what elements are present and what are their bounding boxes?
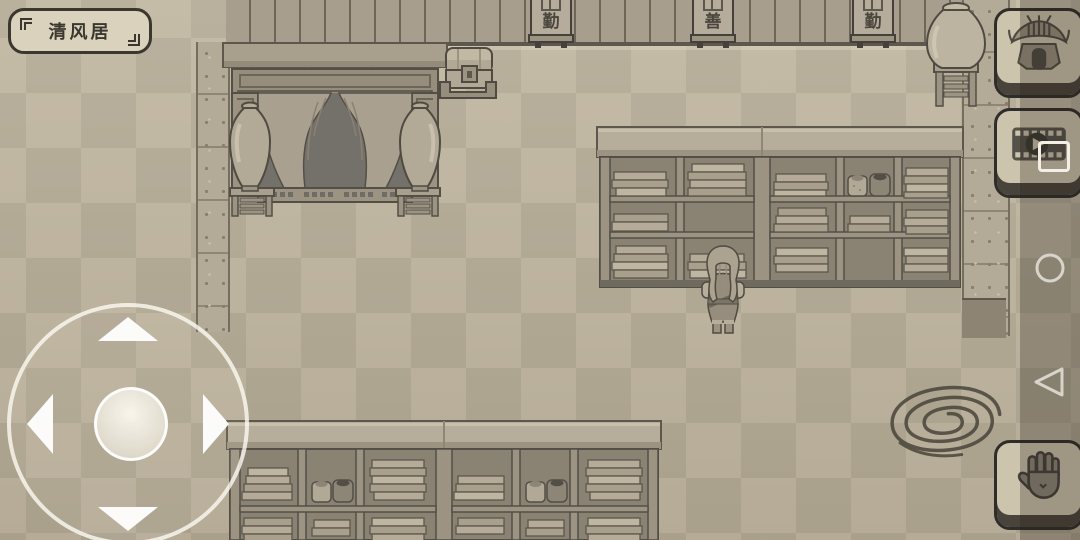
wall-scroll: 勤	[530, 0, 572, 36]
scroll-character: 勤	[532, 12, 570, 32]
joystick-left-arrow[interactable]	[27, 394, 53, 454]
bookshelf-bottom-units	[226, 420, 662, 540]
stone-column-base	[962, 298, 1006, 338]
joystick-up-arrow[interactable]	[98, 317, 158, 341]
game-screen: 勤 善 勤	[0, 0, 1080, 540]
clipped-glyph-fragment	[541, 0, 561, 11]
wall-scroll: 勤	[852, 0, 894, 36]
virtual-joystick[interactable]	[7, 303, 249, 540]
scroll-character: 勤	[854, 12, 892, 32]
canopy-bed	[222, 42, 450, 220]
meander-corner-icon	[127, 33, 141, 47]
joystick-knob[interactable]	[94, 387, 168, 461]
bookshelf-wall-units	[596, 126, 964, 294]
android-back-button[interactable]	[1032, 366, 1066, 398]
joystick-right-arrow[interactable]	[203, 394, 229, 454]
clipped-glyph-fragment	[703, 0, 723, 11]
clipped-glyph-fragment	[863, 0, 883, 11]
location-label-text: 清风居	[49, 18, 112, 44]
android-home-button[interactable]	[1034, 252, 1066, 284]
large-vase-on-stand	[922, 0, 990, 114]
scroll-character: 善	[694, 12, 732, 32]
ink-swirl-mark	[884, 380, 1008, 464]
storage-chest	[438, 44, 498, 102]
wall-scroll: 善	[692, 0, 734, 36]
meander-corner-icon	[19, 17, 33, 31]
joystick-down-arrow[interactable]	[98, 507, 158, 531]
capture-frame	[1038, 141, 1070, 172]
location-label: 清风居	[8, 8, 152, 54]
player-character	[696, 244, 750, 336]
